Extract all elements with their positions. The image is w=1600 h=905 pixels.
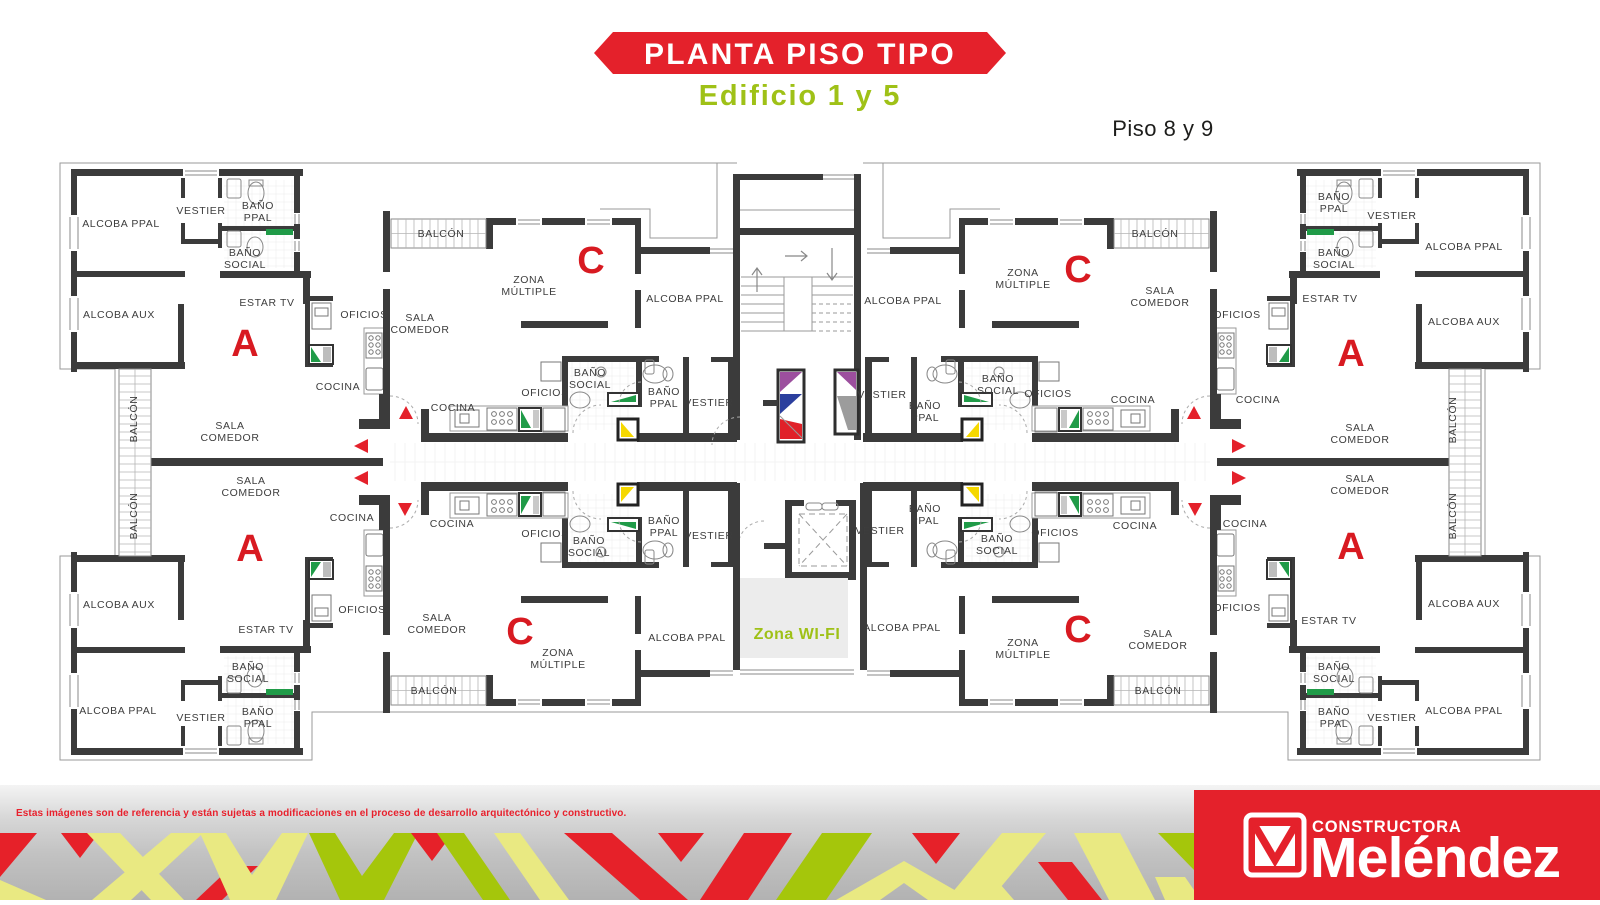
svg-text:SALA: SALA — [1143, 628, 1172, 640]
svg-text:BAÑO: BAÑO — [648, 385, 680, 398]
svg-text:Piso 8 y 9: Piso 8 y 9 — [1112, 116, 1214, 141]
svg-text:Zona WI-FI: Zona WI-FI — [754, 626, 841, 643]
svg-text:A: A — [1337, 333, 1364, 375]
svg-text:OFICIOS: OFICIOS — [521, 387, 568, 399]
svg-text:SOCIAL: SOCIAL — [1313, 259, 1355, 271]
svg-text:OFICIOS: OFICIOS — [1024, 388, 1071, 400]
svg-text:SALA: SALA — [1345, 422, 1374, 434]
svg-text:C: C — [1064, 249, 1091, 291]
svg-text:ALCOBA PPAL: ALCOBA PPAL — [1425, 705, 1503, 717]
svg-text:OFICIOS: OFICIOS — [1031, 527, 1078, 539]
svg-text:BALCÓN: BALCÓN — [127, 396, 140, 443]
svg-text:ALCOBA AUX: ALCOBA AUX — [83, 599, 155, 611]
svg-text:VESTIER: VESTIER — [1367, 210, 1416, 222]
svg-text:OFICIOS: OFICIOS — [521, 528, 568, 540]
svg-text:A: A — [231, 323, 258, 365]
svg-text:COCINA: COCINA — [316, 381, 360, 393]
svg-text:BAÑO: BAÑO — [1318, 190, 1350, 203]
svg-text:COCINA: COCINA — [1111, 394, 1155, 406]
svg-text:C: C — [506, 611, 533, 653]
svg-text:Estas imágenes son de referenc: Estas imágenes son de referencia y están… — [16, 808, 627, 819]
svg-text:BALCÓN: BALCÓN — [1132, 227, 1179, 240]
svg-text:SOCIAL: SOCIAL — [224, 259, 266, 271]
svg-text:BAÑO: BAÑO — [909, 502, 941, 515]
svg-text:COCINA: COCINA — [1113, 520, 1157, 532]
svg-text:SOCIAL: SOCIAL — [977, 385, 1019, 397]
svg-text:BAÑO: BAÑO — [1318, 705, 1350, 718]
svg-text:BAÑO: BAÑO — [981, 532, 1013, 545]
svg-text:BAÑO: BAÑO — [1318, 246, 1350, 259]
svg-text:PPAL: PPAL — [244, 212, 272, 224]
svg-text:PPAL: PPAL — [911, 515, 939, 527]
svg-text:COMEDOR: COMEDOR — [1130, 297, 1189, 309]
svg-text:ESTAR TV: ESTAR TV — [1302, 293, 1357, 305]
svg-text:VESTIER: VESTIER — [855, 525, 904, 537]
svg-text:SOCIAL: SOCIAL — [569, 379, 611, 391]
svg-text:COCINA: COCINA — [1236, 394, 1280, 406]
svg-text:BALCÓN: BALCÓN — [1135, 684, 1182, 697]
svg-text:OFICIOS: OFICIOS — [340, 309, 387, 321]
svg-text:BALCÓN: BALCÓN — [127, 493, 140, 540]
svg-text:PPAL: PPAL — [650, 527, 678, 539]
svg-text:OFICIOS: OFICIOS — [1213, 309, 1260, 321]
svg-text:COCINA: COCINA — [431, 402, 475, 414]
svg-text:COMEDOR: COMEDOR — [1330, 485, 1389, 497]
svg-text:ALCOBA PPAL: ALCOBA PPAL — [1425, 241, 1503, 253]
svg-text:ZONA: ZONA — [1007, 267, 1039, 279]
svg-text:VESTIER: VESTIER — [684, 530, 733, 542]
svg-text:A: A — [1337, 526, 1364, 568]
svg-text:MÚLTIPLE: MÚLTIPLE — [995, 278, 1050, 291]
svg-text:Edificio 1 y 5: Edificio 1 y 5 — [699, 80, 902, 112]
svg-text:ALCOBA PPAL: ALCOBA PPAL — [863, 622, 941, 634]
svg-text:PPAL: PPAL — [1320, 718, 1348, 730]
svg-text:MÚLTIPLE: MÚLTIPLE — [995, 648, 1050, 661]
svg-text:Meléndez: Meléndez — [1310, 826, 1560, 890]
svg-text:VESTIER: VESTIER — [1367, 712, 1416, 724]
svg-text:PPAL: PPAL — [1320, 203, 1348, 215]
svg-text:C: C — [577, 240, 604, 282]
svg-text:VESTIER: VESTIER — [684, 397, 733, 409]
svg-text:VESTIER: VESTIER — [176, 205, 225, 217]
svg-text:SALA: SALA — [405, 312, 434, 324]
svg-text:BALCÓN: BALCÓN — [418, 227, 465, 240]
svg-text:ALCOBA PPAL: ALCOBA PPAL — [648, 632, 726, 644]
svg-text:BAÑO: BAÑO — [909, 399, 941, 412]
svg-text:ALCOBA AUX: ALCOBA AUX — [1428, 316, 1500, 328]
svg-text:COCINA: COCINA — [330, 512, 374, 524]
svg-text:SOCIAL: SOCIAL — [976, 545, 1018, 557]
svg-text:ESTAR TV: ESTAR TV — [239, 297, 294, 309]
svg-text:BAÑO: BAÑO — [982, 372, 1014, 385]
svg-text:BAÑO: BAÑO — [574, 366, 606, 379]
svg-text:COMEDOR: COMEDOR — [407, 624, 466, 636]
svg-text:ALCOBA PPAL: ALCOBA PPAL — [864, 295, 942, 307]
svg-text:COMEDOR: COMEDOR — [390, 324, 449, 336]
svg-text:ESTAR TV: ESTAR TV — [238, 624, 293, 636]
svg-text:BALCÓN: BALCÓN — [1446, 493, 1459, 540]
svg-text:COCINA: COCINA — [1223, 518, 1267, 530]
svg-text:SALA: SALA — [1145, 285, 1174, 297]
svg-text:COMEDOR: COMEDOR — [1128, 640, 1187, 652]
svg-text:SOCIAL: SOCIAL — [1313, 673, 1355, 685]
svg-text:SALA: SALA — [1345, 473, 1374, 485]
svg-text:BAÑO: BAÑO — [232, 660, 264, 673]
svg-text:OFICIOS: OFICIOS — [338, 604, 385, 616]
svg-text:PPAL: PPAL — [650, 398, 678, 410]
svg-text:VESTIER: VESTIER — [176, 712, 225, 724]
svg-text:BAÑO: BAÑO — [229, 246, 261, 259]
svg-text:PPAL: PPAL — [911, 412, 939, 424]
svg-text:VESTIER: VESTIER — [857, 389, 906, 401]
svg-text:SALA: SALA — [215, 420, 244, 432]
svg-text:SALA: SALA — [236, 475, 265, 487]
svg-text:ZONA: ZONA — [513, 274, 545, 286]
svg-text:PLANTA PISO TIPO: PLANTA PISO TIPO — [644, 38, 956, 71]
svg-text:BAÑO: BAÑO — [573, 534, 605, 547]
svg-text:SOCIAL: SOCIAL — [227, 673, 269, 685]
svg-text:BAÑO: BAÑO — [242, 705, 274, 718]
svg-text:ALCOBA PPAL: ALCOBA PPAL — [82, 218, 160, 230]
svg-text:COCINA: COCINA — [430, 518, 474, 530]
svg-text:COMEDOR: COMEDOR — [221, 487, 280, 499]
svg-text:COMEDOR: COMEDOR — [1330, 434, 1389, 446]
svg-text:BALCÓN: BALCÓN — [411, 684, 458, 697]
svg-text:BALCÓN: BALCÓN — [1446, 397, 1459, 444]
svg-text:ALCOBA AUX: ALCOBA AUX — [1428, 598, 1500, 610]
svg-text:ALCOBA AUX: ALCOBA AUX — [83, 309, 155, 321]
svg-text:ESTAR TV: ESTAR TV — [1301, 615, 1356, 627]
svg-text:ALCOBA PPAL: ALCOBA PPAL — [79, 705, 157, 717]
svg-text:MÚLTIPLE: MÚLTIPLE — [501, 285, 556, 298]
svg-text:ALCOBA PPAL: ALCOBA PPAL — [646, 293, 724, 305]
svg-text:COMEDOR: COMEDOR — [200, 432, 259, 444]
svg-text:ZONA: ZONA — [1007, 637, 1039, 649]
svg-text:BAÑO: BAÑO — [1318, 660, 1350, 673]
svg-text:A: A — [236, 528, 263, 570]
svg-text:ZONA: ZONA — [542, 647, 574, 659]
svg-text:MÚLTIPLE: MÚLTIPLE — [530, 658, 585, 671]
svg-text:BAÑO: BAÑO — [242, 199, 274, 212]
svg-text:SALA: SALA — [422, 612, 451, 624]
svg-text:PPAL: PPAL — [244, 718, 272, 730]
svg-text:OFICIOS: OFICIOS — [1213, 602, 1260, 614]
svg-text:BAÑO: BAÑO — [648, 514, 680, 527]
svg-text:C: C — [1064, 609, 1091, 651]
svg-text:SOCIAL: SOCIAL — [568, 547, 610, 559]
